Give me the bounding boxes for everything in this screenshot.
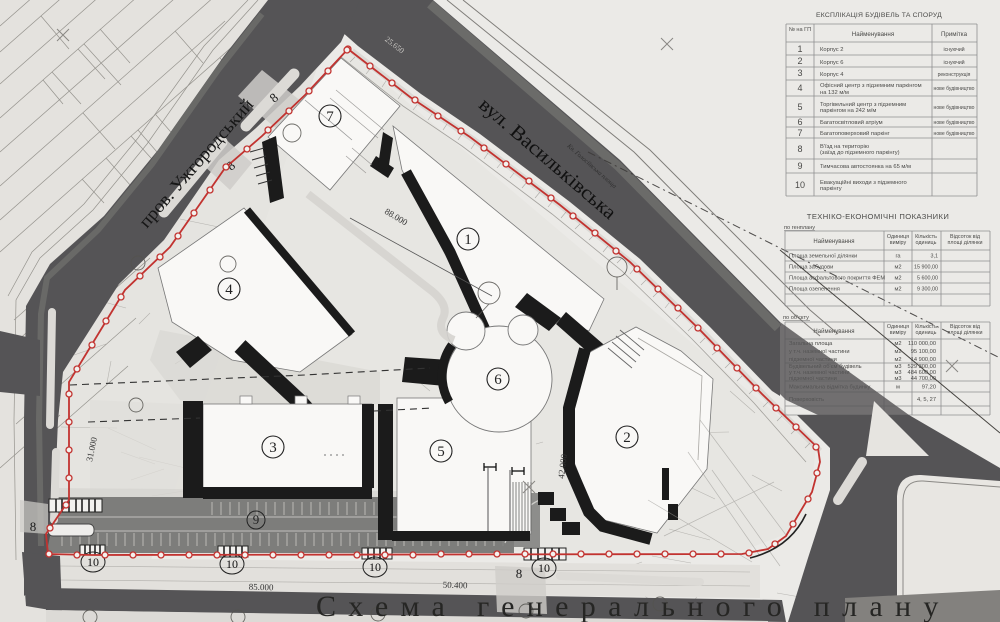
svg-text:95 100,00: 95 100,00	[911, 349, 936, 355]
svg-text:Багатоповерховий паркінг: Багатоповерховий паркінг	[820, 130, 890, 137]
svg-text:Площа земельної ділянки: Площа земельної ділянки	[789, 254, 857, 260]
svg-text:3: 3	[797, 68, 802, 78]
svg-text:8: 8	[797, 144, 802, 154]
svg-text:6: 6	[494, 372, 502, 388]
svg-text:Евакуаційні виходи з підземног: Евакуаційні виходи з підземного	[820, 179, 907, 186]
svg-text:Найменування: Найменування	[813, 328, 854, 335]
svg-text:м2: м2	[894, 265, 901, 271]
svg-text:нове будівництво: нове будівництво	[934, 120, 975, 126]
svg-text:Площа асфальтового покриття Ф: Площа асфальтового покриття ФЕМ	[789, 276, 885, 282]
svg-text:6: 6	[797, 117, 802, 127]
svg-text:8: 8	[30, 519, 37, 534]
svg-text:одиниць: одиниць	[916, 330, 937, 336]
svg-text:10: 10	[87, 555, 99, 569]
svg-text:Багатосвітловий атріум: Багатосвітловий атріум	[820, 119, 883, 126]
svg-text:м2: м2	[894, 357, 901, 363]
svg-text:м: м	[896, 385, 900, 391]
svg-text:Корпус 6: Корпус 6	[820, 60, 844, 66]
svg-text:5 600,00: 5 600,00	[917, 276, 938, 282]
svg-text:1: 1	[797, 44, 802, 54]
svg-text:виміру: виміру	[890, 330, 907, 336]
svg-text:50.400: 50.400	[443, 580, 469, 591]
svg-text:10: 10	[369, 560, 381, 574]
svg-text:10: 10	[226, 557, 238, 571]
svg-text:4: 4	[797, 83, 802, 93]
svg-text:реконструкція: реконструкція	[938, 72, 971, 78]
svg-text:нове будівництво: нове будівництво	[934, 131, 975, 137]
svg-text:97,20: 97,20	[922, 385, 936, 391]
svg-text:2: 2	[623, 430, 631, 446]
svg-text:Найменування: Найменування	[852, 31, 894, 38]
svg-text:10: 10	[795, 180, 805, 190]
svg-text:ЕКСПЛІКАЦІЯ БУДІВЕЛЬ ТА СПОРУД: ЕКСПЛІКАЦІЯ БУДІВЕЛЬ ТА СПОРУД	[816, 12, 942, 19]
svg-text:7: 7	[326, 109, 334, 125]
svg-text:5: 5	[437, 444, 445, 460]
svg-text:м3: м3	[894, 376, 901, 382]
svg-text:1: 1	[464, 232, 472, 248]
svg-text:одиниць: одиниць	[916, 240, 937, 246]
svg-text:Тимчасова автостоянка на 65 м/: Тимчасова автостоянка на 65 м/м	[820, 164, 911, 170]
svg-text:110 000,00: 110 000,00	[908, 341, 936, 347]
svg-text:3: 3	[269, 440, 277, 456]
svg-text:Площа забудови: Площа забудови	[789, 265, 833, 271]
svg-text:85.000: 85.000	[249, 582, 275, 593]
svg-text:існуючий: існуючий	[943, 59, 964, 66]
svg-text:ТЕХНІКО-ЕКОНОМІЧНІ ПОКАЗНИКИ: ТЕХНІКО-ЕКОНОМІЧНІ ПОКАЗНИКИ	[807, 212, 949, 221]
svg-text:існуючий: існуючий	[943, 46, 964, 53]
svg-text:паркінгом на 242 м/м: паркінгом на 242 м/м	[820, 108, 876, 114]
svg-text:площі ділянки: площі ділянки	[947, 330, 982, 336]
svg-text:4: 4	[225, 282, 233, 298]
svg-text:(заїзд до підземного паркінгу): (заїзд до підземного паркінгу)	[820, 150, 900, 156]
svg-text:виміру: виміру	[890, 240, 907, 246]
svg-text:2: 2	[797, 56, 802, 66]
svg-text:15 900,00: 15 900,00	[914, 265, 938, 271]
svg-text:8: 8	[516, 566, 523, 581]
svg-text:по генплану: по генплану	[784, 225, 815, 231]
svg-text:9 300,00: 9 300,00	[917, 287, 938, 293]
svg-text:7: 7	[797, 128, 802, 138]
svg-text:нове будівництво: нове будівництво	[934, 105, 975, 111]
svg-text:№ на ГП: № на ГП	[789, 27, 811, 33]
svg-text:Найменування: Найменування	[813, 238, 854, 245]
svg-text:Офісний центр з підземним парк: Офісний центр з підземним паркінгом	[820, 82, 922, 89]
svg-text:Корпус 2: Корпус 2	[820, 47, 844, 53]
svg-text:площі ділянки: площі ділянки	[947, 240, 982, 246]
svg-text:3,1: 3,1	[931, 254, 939, 260]
svg-text:Примітка: Примітка	[941, 31, 968, 38]
svg-text:м2: м2	[894, 276, 901, 282]
svg-text:5: 5	[797, 102, 802, 112]
svg-text:Площа озеленення: Площа озеленення	[789, 287, 840, 293]
svg-text:Торгівельний центр з підземним: Торгівельний центр з підземним	[820, 101, 906, 108]
svg-text:га: га	[895, 254, 901, 260]
svg-text:м2: м2	[894, 287, 901, 293]
svg-text:10: 10	[538, 561, 550, 575]
svg-text:по об'єкту: по об'єкту	[783, 315, 809, 321]
svg-text:Схема генерального плану: Схема генерального плану	[316, 590, 951, 622]
svg-text:4, 5, 27: 4, 5, 27	[917, 397, 936, 403]
svg-text:нове будівництво: нове будівництво	[934, 86, 975, 92]
svg-text:9: 9	[253, 512, 260, 527]
svg-text:на 132 м/м: на 132 м/м	[820, 90, 849, 96]
svg-text:Корпус 4: Корпус 4	[820, 72, 844, 78]
svg-text:9: 9	[797, 161, 802, 171]
svg-text:паркінгу: паркінгу	[820, 186, 842, 192]
